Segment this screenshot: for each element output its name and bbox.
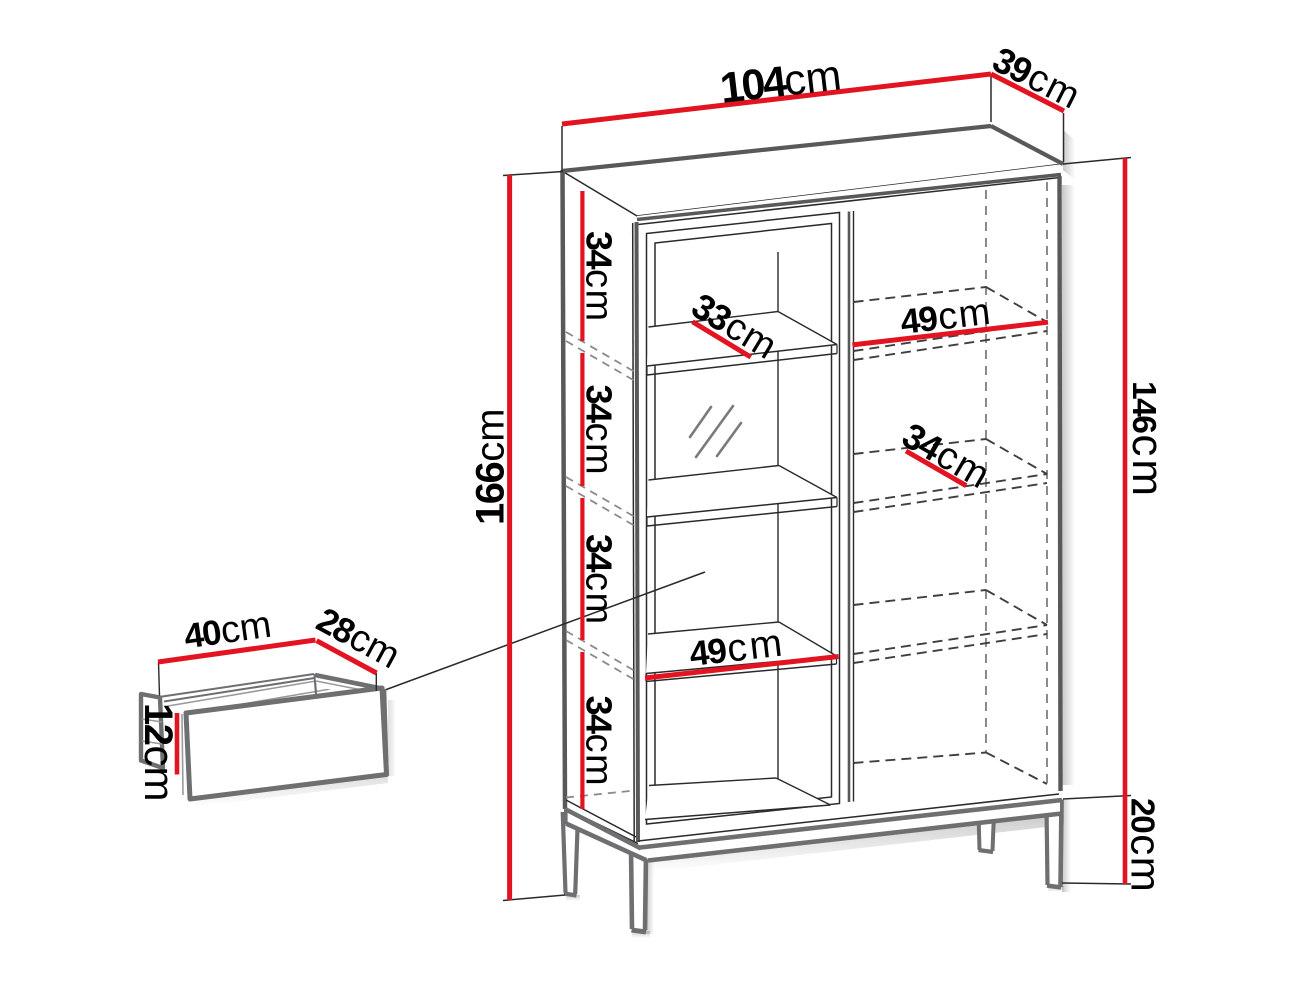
svg-text:146cm: 146cm	[1123, 381, 1172, 499]
svg-text:49cm: 49cm	[898, 291, 994, 343]
svg-text:34cm: 34cm	[578, 231, 620, 323]
svg-text:104cm: 104cm	[718, 51, 844, 113]
svg-text:166cm: 166cm	[468, 408, 512, 525]
svg-text:39cm: 39cm	[986, 39, 1088, 118]
svg-text:34cm: 34cm	[895, 414, 998, 498]
svg-text:12cm: 12cm	[136, 703, 183, 802]
svg-text:34cm: 34cm	[578, 385, 620, 477]
svg-text:20cm: 20cm	[1123, 798, 1170, 893]
svg-text:34cm: 34cm	[578, 534, 620, 626]
svg-text:34cm: 34cm	[578, 696, 620, 788]
